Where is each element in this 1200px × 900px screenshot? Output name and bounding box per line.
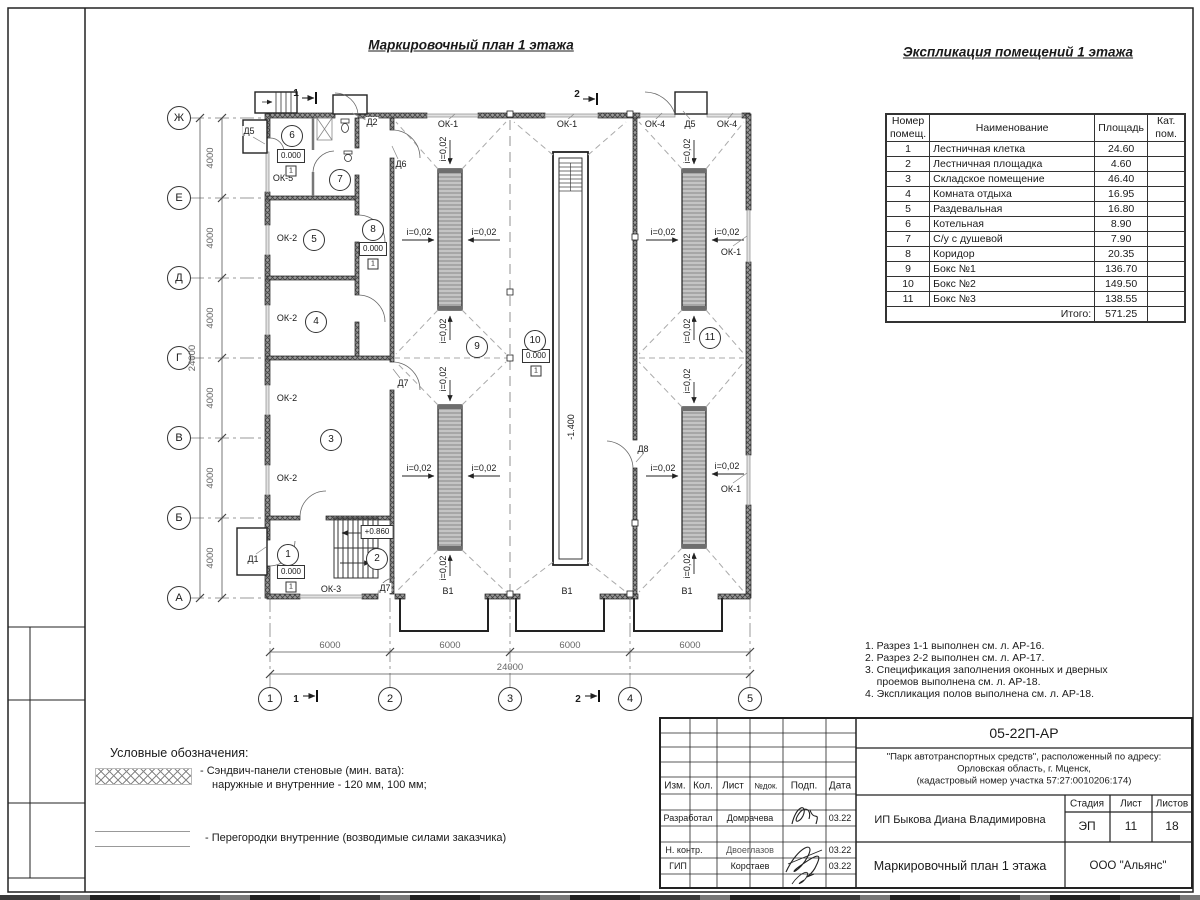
slope-label: i=0,02 xyxy=(438,555,448,582)
room-name: Бокс №1 xyxy=(930,262,1095,277)
room-cat xyxy=(1148,292,1186,307)
door-label-d2: Д2 xyxy=(365,117,378,127)
slope-label: i=0,02 xyxy=(471,463,498,473)
window-label-ok2: ОК-2 xyxy=(276,313,298,323)
room-number-8: 8 xyxy=(362,219,384,241)
room-num: 1 xyxy=(886,142,930,157)
axis-lines xyxy=(190,118,750,688)
room-num: 3 xyxy=(886,172,930,187)
slope-label: i=0,02 xyxy=(714,227,741,237)
stamp-col-ndok: №док. xyxy=(754,782,777,791)
stamp-company: ООО "Альянс" xyxy=(1090,860,1167,872)
axis-row-d: Д xyxy=(167,266,191,290)
gate-label-v1: В1 xyxy=(560,586,573,596)
gate-label-v1: В1 xyxy=(441,586,454,596)
room-cat xyxy=(1148,157,1186,172)
stamp-col-kol: Кол. xyxy=(693,781,713,792)
dim-24000-v: 24000 xyxy=(188,344,198,372)
slope-label: i=0,02 xyxy=(438,366,448,393)
room-area: 138.55 xyxy=(1095,292,1148,307)
floor-type-mark: 1 xyxy=(286,582,297,593)
stamp-project-line2: Орловская область, г. Мценск, xyxy=(957,764,1091,775)
room-area: 7.90 xyxy=(1095,232,1148,247)
floor-type-mark: 1 xyxy=(368,259,379,270)
slope-label: i=0,02 xyxy=(682,318,692,345)
room-name: Котельная xyxy=(930,217,1095,232)
room-area: 8.90 xyxy=(1095,217,1148,232)
dim-4000: 4000 xyxy=(206,146,216,169)
window-label-ok3: ОК-3 xyxy=(320,584,342,594)
room-number-1: 1 xyxy=(277,544,299,566)
slope-label: i=0,02 xyxy=(682,368,692,395)
explication-table: Номер помещ. Наименование Площадь Кат. п… xyxy=(885,113,1186,323)
table-header-row: Номер помещ. Наименование Площадь Кат. п… xyxy=(886,114,1185,142)
room-number-5: 5 xyxy=(303,229,325,251)
col-header-cat: Кат. пом. xyxy=(1148,114,1186,142)
note-line: 3. Спецификация заполнения оконных и две… xyxy=(865,664,1108,676)
stamp-col-izm: Изм. xyxy=(664,781,685,792)
room-name: Складское помещение xyxy=(930,172,1095,187)
table-row: 7С/у с душевой7.90 xyxy=(886,232,1185,247)
room-number-6: 6 xyxy=(281,125,303,147)
table-row: 10Бокс №2149.50 xyxy=(886,277,1185,292)
room-cat xyxy=(1148,142,1186,157)
stamp-project-line1: "Парк автотранспортных средств", располо… xyxy=(887,752,1162,763)
room-cat xyxy=(1148,277,1186,292)
dim-6000: 6000 xyxy=(678,641,701,651)
table-row: 4Комната отдыха16.95 xyxy=(886,187,1185,202)
stamp-sheet-label: Лист xyxy=(1120,799,1142,810)
axis-row-v: В xyxy=(167,426,191,450)
room-area: 4.60 xyxy=(1095,157,1148,172)
floor-type-mark: 1 xyxy=(531,366,542,377)
room-number-3: 3 xyxy=(320,429,342,451)
window-label-ok4: ОК-4 xyxy=(644,119,666,129)
room-num: 9 xyxy=(886,262,930,277)
axis-col-2: 2 xyxy=(378,687,402,711)
dim-6000: 6000 xyxy=(558,641,581,651)
table-row: 3Складское помещение46.40 xyxy=(886,172,1185,187)
window-label-ok2: ОК-2 xyxy=(276,473,298,483)
slope-label: i=0,02 xyxy=(682,553,692,580)
slope-label: i=0,02 xyxy=(406,463,433,473)
floor-type-mark: 1 xyxy=(286,166,297,177)
section-mark-1: 1 xyxy=(292,89,300,99)
note-line: 4. Экспликация полов выполнена см. л. АР… xyxy=(865,688,1094,700)
col-header-num: Номер помещ. xyxy=(886,114,930,142)
room-cat xyxy=(1148,172,1186,187)
note-line: проемов выполнена см. л. АР-18. xyxy=(865,676,1041,688)
room-number-2: 2 xyxy=(366,548,388,570)
axis-row-e: Е xyxy=(167,186,191,210)
window-label-ok1: ОК-1 xyxy=(437,119,459,129)
dim-4000: 4000 xyxy=(206,226,216,249)
window-label-ok2: ОК-2 xyxy=(276,233,298,243)
table-row: 9Бокс №1136.70 xyxy=(886,262,1185,277)
stamp-role-gip: ГИП xyxy=(669,861,687,871)
note-line: 2. Разрез 2-2 выполнен см. л. АР-17. xyxy=(865,652,1044,664)
room-number-4: 4 xyxy=(305,311,327,333)
room-cat xyxy=(1148,217,1186,232)
door-label-d8: Д8 xyxy=(636,444,649,454)
scan-edge-artifact xyxy=(0,895,1200,900)
stamp-date-developer: 03.22 xyxy=(829,813,852,823)
room-num: 5 xyxy=(886,202,930,217)
table-row: 11Бокс №3138.55 xyxy=(886,292,1185,307)
note-line: 1. Разрез 1-1 выполнен см. л. АР-16. xyxy=(865,640,1044,652)
stamp-stage-value: ЭП xyxy=(1078,819,1095,833)
table-row: 8Коридор20.35 xyxy=(886,247,1185,262)
door-label-d5: Д5 xyxy=(242,126,255,136)
room-cat xyxy=(1148,247,1186,262)
slope-label: i=0,02 xyxy=(650,463,677,473)
axis-row-zh: Ж xyxy=(167,106,191,130)
dim-24000-h: 24000 xyxy=(496,663,524,673)
legend-item1-line1: - Сэндвич-панели стеновые (мин. вата): xyxy=(200,765,404,777)
stamp-sheet-value: 11 xyxy=(1125,819,1137,833)
elevation-zero: 0.000 xyxy=(277,149,305,163)
legend-swatch-sandwich-panel xyxy=(95,768,192,785)
stamp-client: ИП Быкова Диана Владимировна xyxy=(874,814,1045,826)
total-cat xyxy=(1148,307,1186,323)
room-area: 16.80 xyxy=(1095,202,1148,217)
stamp-col-list: Лист xyxy=(722,781,744,792)
room-num: 2 xyxy=(886,157,930,172)
room-num: 7 xyxy=(886,232,930,247)
elevation-stair: +0.860 xyxy=(361,525,394,539)
window-label-ok2: ОК-2 xyxy=(276,393,298,403)
room-area: 20.35 xyxy=(1095,247,1148,262)
room-num: 10 xyxy=(886,277,930,292)
room-name: Раздевальная xyxy=(930,202,1095,217)
drawing-sheet: Маркировочный план 1 этажа Экспликация п… xyxy=(0,0,1200,900)
sanitary-fixtures xyxy=(341,119,352,162)
stamp-date-gip: 03.22 xyxy=(829,861,852,871)
room-num: 6 xyxy=(886,217,930,232)
axis-col-5: 5 xyxy=(738,687,762,711)
stamp-name-gip: Коротаев xyxy=(731,861,770,871)
dim-6000: 6000 xyxy=(438,641,461,651)
total-label: Итого: xyxy=(886,307,1095,323)
table-row: 2Лестничная площадка4.60 xyxy=(886,157,1185,172)
stamp-col-podp: Подп. xyxy=(791,781,818,792)
axis-row-b: Б xyxy=(167,506,191,530)
label-leaders xyxy=(253,111,747,593)
stamp-name-developer: Домрачева xyxy=(727,813,774,823)
room-cat xyxy=(1148,262,1186,277)
room-cat xyxy=(1148,187,1186,202)
door-label-d6: Д6 xyxy=(394,159,407,169)
dim-4000: 4000 xyxy=(206,466,216,489)
stamp-sheets-value: 18 xyxy=(1165,819,1178,833)
dim-4000: 4000 xyxy=(206,306,216,329)
room-num: 8 xyxy=(886,247,930,262)
room-name: Бокс №3 xyxy=(930,292,1095,307)
slope-label: i=0,02 xyxy=(714,461,741,471)
slope-label: i=0,02 xyxy=(406,227,433,237)
window-label-ok1: ОК-1 xyxy=(720,484,742,494)
room-num: 4 xyxy=(886,187,930,202)
legend-item2: - Перегородки внутренние (возводимые сил… xyxy=(205,832,506,844)
gate-aprons xyxy=(400,598,722,631)
shower-cubicle xyxy=(317,118,332,140)
dim-6000: 6000 xyxy=(318,641,341,651)
legend-item1-line2: наружные и внутренние - 120 мм, 100 мм; xyxy=(212,779,427,791)
stamp-stage-label: Стадия xyxy=(1070,799,1104,810)
col-header-area: Площадь xyxy=(1095,114,1148,142)
stamp-role-developer: Разработал xyxy=(664,813,713,823)
room-area: 16.95 xyxy=(1095,187,1148,202)
room-name: Лестничная площадка xyxy=(930,157,1095,172)
room-number-9: 9 xyxy=(466,336,488,358)
stamp-drawing-title: Маркировочный план 1 этажа xyxy=(874,859,1047,873)
axis-row-a: А xyxy=(167,586,191,610)
section-mark-2: 2 xyxy=(573,90,581,100)
legend-swatch-partition xyxy=(95,831,190,847)
slope-label: i=0,02 xyxy=(438,318,448,345)
slope-label: i=0,02 xyxy=(471,227,498,237)
door-label-d5: Д5 xyxy=(683,119,696,129)
table-row: 5Раздевальная16.80 xyxy=(886,202,1185,217)
dim-4000: 4000 xyxy=(206,546,216,569)
slope-label: i=0,02 xyxy=(438,136,448,163)
window-label-ok1: ОК-1 xyxy=(556,119,578,129)
total-area: 571.25 xyxy=(1095,307,1148,323)
room-area: 46.40 xyxy=(1095,172,1148,187)
room-name: Комната отдыха xyxy=(930,187,1095,202)
room-area: 149.50 xyxy=(1095,277,1148,292)
slope-label: i=0,02 xyxy=(650,227,677,237)
stamp-doc-number: 05-22П-АР xyxy=(989,725,1058,741)
door-label-d7: Д7 xyxy=(396,378,409,388)
legend-title: Условные обозначения: xyxy=(110,746,249,760)
gate-label-v1: В1 xyxy=(680,586,693,596)
elevation-zero: 0.000 xyxy=(277,565,305,579)
col-header-name: Наименование xyxy=(930,114,1095,142)
room-number-10: 10 xyxy=(524,330,546,352)
room-cat xyxy=(1148,202,1186,217)
door-label-d1: Д1 xyxy=(246,554,259,564)
slope-label: i=0,02 xyxy=(682,138,692,165)
plan-title: Маркировочный план 1 этажа xyxy=(368,38,574,53)
room-name: С/у с душевой xyxy=(930,232,1095,247)
section-mark-1: 1 xyxy=(292,695,300,705)
window-label-ok4: ОК-4 xyxy=(716,119,738,129)
stamp-col-data: Дата xyxy=(829,781,851,792)
stamp-date-ncontr: 03.22 xyxy=(829,845,852,855)
axis-col-1: 1 xyxy=(258,687,282,711)
window-label-ok1: ОК-1 xyxy=(720,247,742,257)
door-label-d7: Д7 xyxy=(378,583,391,593)
room-name: Коридор xyxy=(930,247,1095,262)
room-area: 24.60 xyxy=(1095,142,1148,157)
elevation-zero: 0.000 xyxy=(359,242,387,256)
axis-col-3: 3 xyxy=(498,687,522,711)
axis-col-4: 4 xyxy=(618,687,642,711)
room-cat xyxy=(1148,232,1186,247)
room-number-11: 11 xyxy=(699,327,721,349)
table-row: 1Лестничная клетка24.60 xyxy=(886,142,1185,157)
table-total-row: Итого: 571.25 xyxy=(886,307,1185,323)
elevation-pit: -1.400 xyxy=(566,413,576,441)
room-area: 136.70 xyxy=(1095,262,1148,277)
section-mark-2: 2 xyxy=(574,695,582,705)
inspection-pit xyxy=(553,152,588,565)
explication-title: Экспликация помещений 1 этажа xyxy=(903,45,1133,60)
stamp-name-ncontr: Двоеглазов xyxy=(726,845,774,855)
table-row: 6Котельная8.90 xyxy=(886,217,1185,232)
stamp-role-ncontr: Н. контр. xyxy=(665,845,702,855)
room-num: 11 xyxy=(886,292,930,307)
dim-4000: 4000 xyxy=(206,386,216,409)
signatures xyxy=(786,808,822,884)
stamp-project-line3: (кадастровый номер участка 57:27:0010206… xyxy=(917,776,1132,787)
room-name: Бокс №2 xyxy=(930,277,1095,292)
room-name: Лестничная клетка xyxy=(930,142,1095,157)
room-number-7: 7 xyxy=(329,169,351,191)
stamp-sheets-label: Листов xyxy=(1156,799,1189,810)
